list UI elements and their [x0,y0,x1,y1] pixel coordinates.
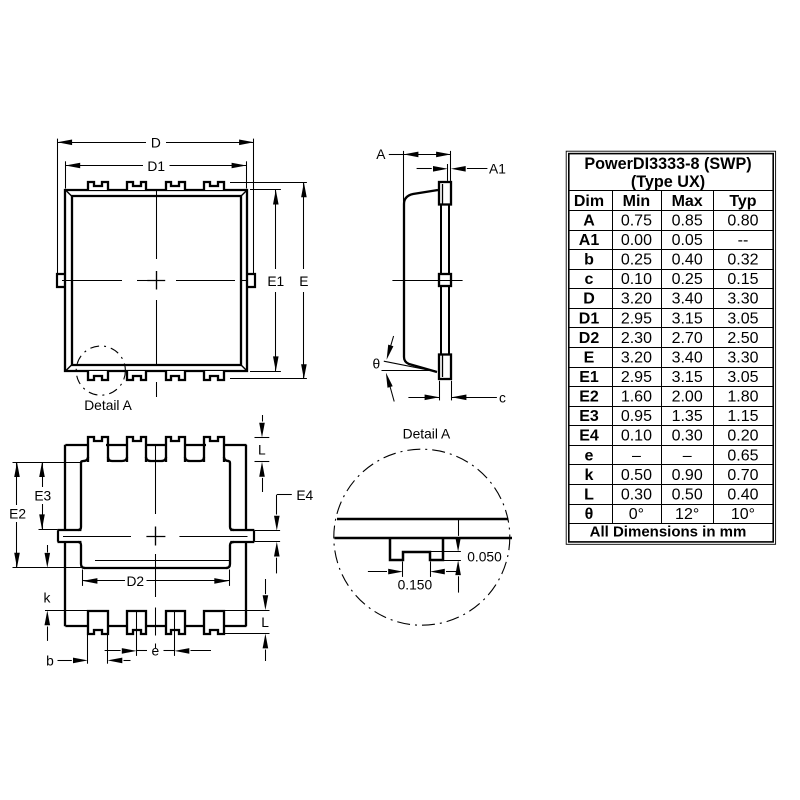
svg-text:0.20: 0.20 [727,428,758,445]
svg-text:Dim: Dim [574,193,604,210]
svg-text:0.30: 0.30 [621,486,652,503]
svg-text:e: e [585,447,594,464]
svg-text:3.20: 3.20 [621,349,652,366]
svg-text:0.50: 0.50 [621,467,652,484]
svg-text:L: L [258,442,266,457]
svg-text:10°: 10° [731,506,755,523]
svg-text:E: E [299,274,308,289]
svg-text:0.00: 0.00 [621,232,652,249]
svg-text:Detail A: Detail A [403,427,451,442]
svg-text:2.95: 2.95 [621,369,652,386]
svg-text:1.80: 1.80 [727,389,758,406]
svg-text:0.95: 0.95 [621,408,652,425]
svg-text:0.150: 0.150 [398,578,433,593]
svg-text:0.70: 0.70 [727,467,758,484]
svg-text:A: A [376,147,386,162]
svg-text:D1: D1 [579,310,600,327]
svg-text:A1: A1 [579,232,600,249]
svg-text:b: b [46,653,54,668]
svg-text:0.32: 0.32 [727,252,758,269]
svg-text:E2: E2 [9,507,26,522]
svg-text:3.40: 3.40 [672,291,703,308]
svg-text:0.85: 0.85 [672,212,703,229]
svg-text:E: E [584,349,595,366]
svg-text:L: L [261,615,269,630]
svg-text:D: D [583,291,595,308]
svg-text:c: c [585,271,594,288]
svg-text:0.10: 0.10 [621,428,652,445]
svg-text:c: c [499,390,506,405]
svg-text:D: D [151,136,161,151]
svg-text:3.20: 3.20 [621,291,652,308]
svg-text:L: L [584,486,594,503]
svg-text:1.60: 1.60 [621,389,652,406]
svg-text:PowerDI3333-8 (SWP): PowerDI3333-8 (SWP) [584,155,751,173]
svg-text:2.95: 2.95 [621,310,652,327]
svg-text:0.90: 0.90 [672,467,703,484]
svg-text:A: A [583,212,595,229]
svg-text:0.10: 0.10 [621,271,652,288]
svg-text:0.80: 0.80 [727,212,758,229]
svg-text:--: -- [738,232,749,249]
svg-text:0.65: 0.65 [727,447,758,464]
svg-text:0.15: 0.15 [727,271,758,288]
svg-text:3.30: 3.30 [727,349,758,366]
svg-text:E2: E2 [579,389,599,406]
svg-text:Max: Max [672,193,703,210]
svg-text:0°: 0° [629,506,644,523]
svg-text:1.35: 1.35 [672,408,703,425]
svg-text:D2: D2 [126,574,144,589]
svg-text:E1: E1 [579,369,599,386]
svg-text:θ: θ [372,356,380,371]
svg-text:Detail A: Detail A [84,398,132,413]
svg-text:All Dimensions in mm: All Dimensions in mm [590,524,747,541]
svg-text:0.40: 0.40 [727,486,758,503]
svg-text:0.75: 0.75 [621,212,652,229]
svg-text:D2: D2 [579,330,600,347]
svg-text:3.30: 3.30 [727,291,758,308]
svg-text:3.15: 3.15 [672,369,703,386]
svg-text:0.25: 0.25 [621,252,652,269]
svg-text:3.40: 3.40 [672,349,703,366]
svg-text:k: k [44,591,51,606]
svg-text:(Type UX): (Type UX) [631,173,705,191]
svg-text:D1: D1 [147,159,165,174]
svg-text:3.05: 3.05 [727,310,758,327]
svg-text:2.50: 2.50 [727,330,758,347]
svg-text:0.50: 0.50 [672,486,703,503]
svg-text:0.30: 0.30 [672,428,703,445]
svg-text:0.40: 0.40 [672,252,703,269]
svg-text:Typ: Typ [729,193,756,210]
svg-text:0.05: 0.05 [672,232,703,249]
svg-text:b: b [584,252,594,269]
svg-text:–: – [683,447,692,464]
svg-text:2.70: 2.70 [672,330,703,347]
svg-text:0.25: 0.25 [672,271,703,288]
svg-text:1.15: 1.15 [727,408,758,425]
svg-text:–: – [632,447,641,464]
svg-text:0.050: 0.050 [467,549,502,564]
svg-text:Min: Min [623,193,651,210]
svg-text:k: k [585,467,594,484]
svg-text:2.30: 2.30 [621,330,652,347]
svg-text:E4: E4 [579,428,599,445]
svg-text:A1: A1 [489,162,506,177]
svg-text:θ: θ [585,506,594,523]
svg-text:3.05: 3.05 [727,369,758,386]
svg-text:12°: 12° [675,506,699,523]
svg-text:E4: E4 [296,488,313,503]
svg-text:E3: E3 [579,408,599,425]
svg-text:e: e [151,644,159,659]
svg-text:2.00: 2.00 [672,389,703,406]
svg-text:3.15: 3.15 [672,310,703,327]
svg-text:E3: E3 [34,488,51,503]
svg-text:E1: E1 [267,274,284,289]
